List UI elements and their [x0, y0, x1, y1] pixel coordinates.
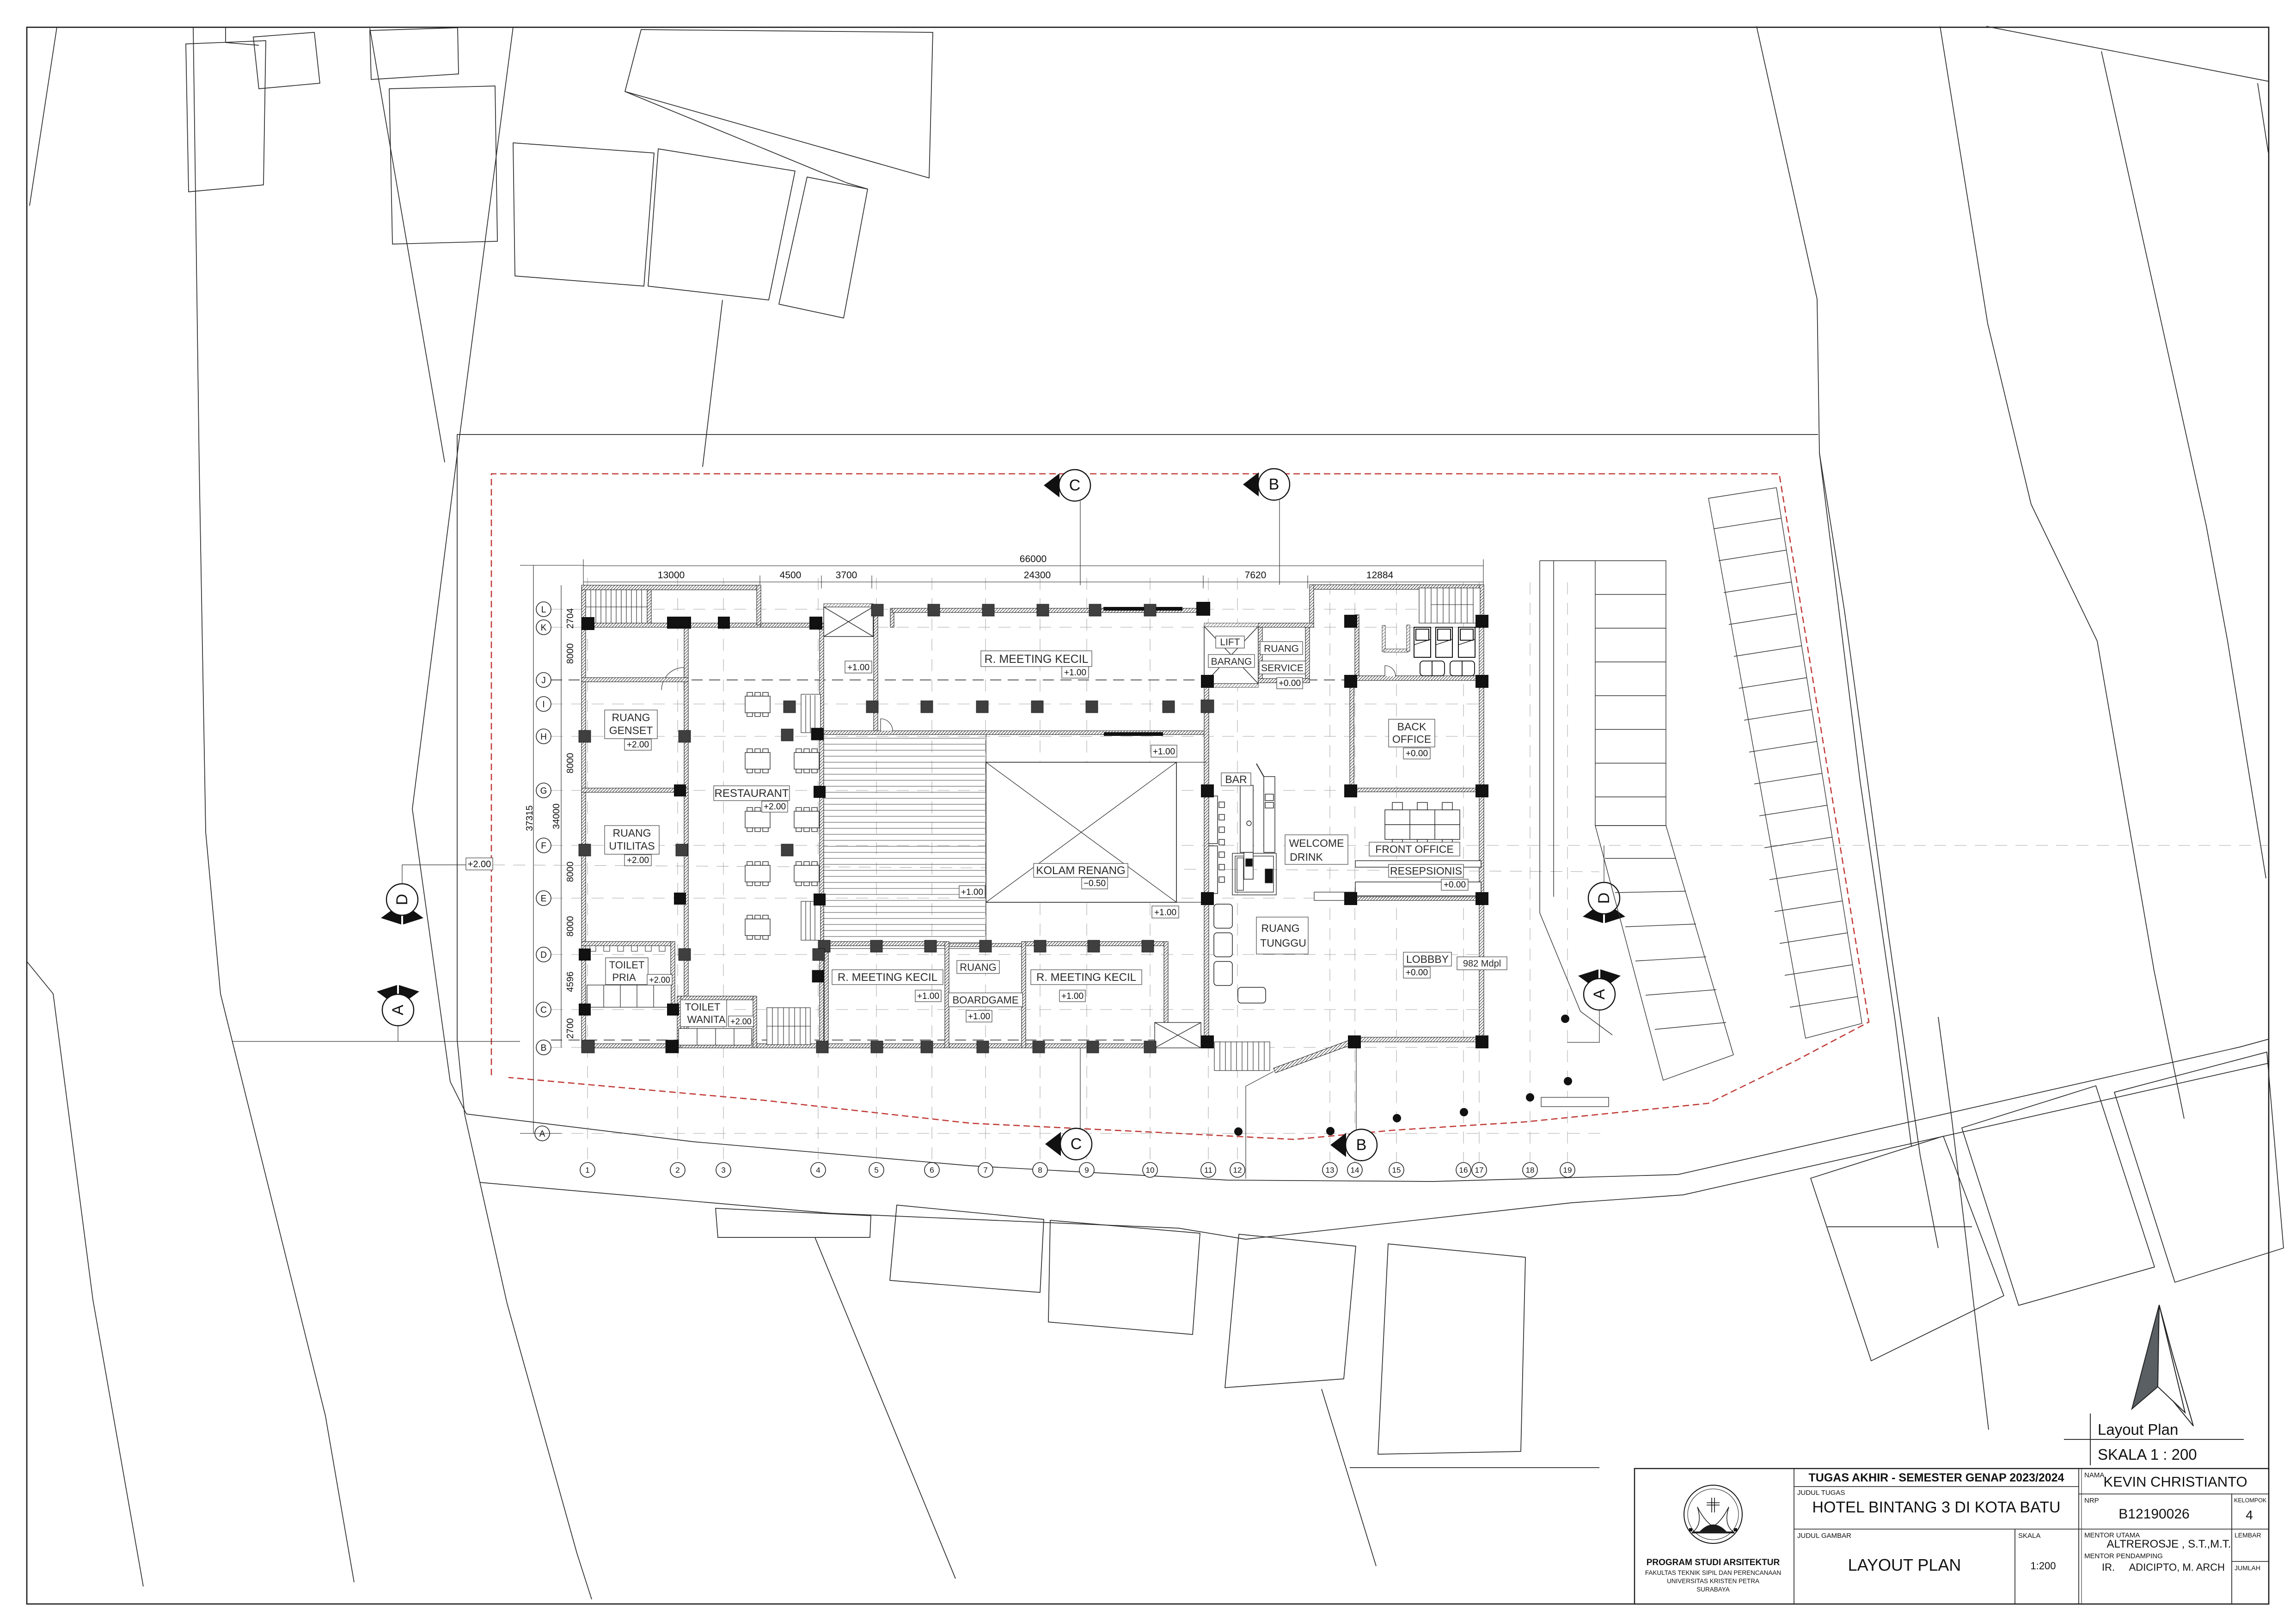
svg-text:+2.00: +2.00: [730, 1017, 752, 1026]
svg-text:1:200: 1:200: [2030, 1560, 2056, 1572]
svg-text:A: A: [539, 1129, 545, 1139]
svg-text:D: D: [393, 894, 411, 906]
svg-text:WELCOME: WELCOME: [1289, 837, 1344, 849]
svg-text:12884: 12884: [1366, 570, 1394, 581]
svg-text:HOTEL BINTANG 3 DI KOTA BATU: HOTEL BINTANG 3 DI KOTA BATU: [1812, 1499, 2060, 1516]
svg-text:JUMLAH: JUMLAH: [2235, 1564, 2260, 1572]
svg-text:TUGAS AKHIR - SEMESTER GENAP 2: TUGAS AKHIR - SEMESTER GENAP 2023/2024: [1809, 1471, 2064, 1484]
svg-text:C: C: [1071, 1135, 1082, 1153]
svg-text:+0.00: +0.00: [1279, 679, 1301, 688]
svg-text:RUANG: RUANG: [1264, 643, 1299, 654]
svg-text:2700: 2700: [565, 1018, 576, 1039]
svg-text:7: 7: [983, 1166, 987, 1175]
svg-text:WANITA: WANITA: [687, 1014, 725, 1025]
svg-text:SERVICE: SERVICE: [1261, 663, 1304, 673]
svg-text:PROGRAM STUDI ARSITEKTUR: PROGRAM STUDI ARSITEKTUR: [1647, 1558, 1780, 1567]
svg-text:TOILET: TOILET: [685, 1001, 721, 1013]
svg-text:BOARDGAME: BOARDGAME: [952, 994, 1018, 1006]
svg-text:8000: 8000: [565, 643, 576, 664]
svg-text:RESTAURANT: RESTAURANT: [715, 787, 789, 800]
svg-text:982 Mdpl: 982 Mdpl: [1463, 959, 1501, 969]
svg-text:13000: 13000: [658, 570, 685, 581]
svg-text:10: 10: [1146, 1166, 1155, 1175]
svg-text:BAR: BAR: [1225, 773, 1247, 785]
svg-text:R. MEETING KECIL: R. MEETING KECIL: [838, 971, 937, 984]
svg-text:+2.00: +2.00: [649, 975, 670, 985]
svg-text:LAYOUT PLAN: LAYOUT PLAN: [1848, 1555, 1961, 1574]
svg-text:15: 15: [1392, 1166, 1401, 1175]
svg-text:IR. ADICIPTO, M. ARCH: IR. ADICIPTO, M. ARCH: [2102, 1561, 2225, 1573]
svg-text:4: 4: [2246, 1508, 2253, 1522]
svg-text:3: 3: [721, 1166, 725, 1175]
svg-text:A: A: [389, 1004, 407, 1015]
svg-text:−0.50: −0.50: [1084, 879, 1106, 888]
svg-text:2704: 2704: [565, 608, 576, 629]
svg-text:RUANG: RUANG: [960, 961, 996, 973]
svg-text:16: 16: [1459, 1166, 1468, 1175]
svg-text:OFFICE: OFFICE: [1392, 733, 1431, 745]
svg-text:+1.00: +1.00: [1064, 668, 1086, 678]
svg-text:66000: 66000: [1020, 554, 1047, 564]
svg-text:FAKULTAS TEKNIK SIPIL DAN PERE: FAKULTAS TEKNIK SIPIL DAN PERENCANAAN: [1645, 1569, 1781, 1576]
svg-text:12: 12: [1233, 1166, 1242, 1175]
svg-text:LIFT: LIFT: [1220, 637, 1240, 648]
svg-text:18: 18: [1526, 1166, 1535, 1175]
svg-text:7620: 7620: [1245, 570, 1267, 581]
svg-text:GENSET: GENSET: [609, 724, 653, 736]
svg-text:SKALA: SKALA: [2018, 1532, 2040, 1540]
svg-text:8000: 8000: [565, 916, 576, 937]
svg-text:R. MEETING KECIL: R. MEETING KECIL: [1036, 971, 1136, 984]
svg-text:L: L: [541, 605, 546, 615]
svg-text:+2.00: +2.00: [468, 859, 491, 869]
svg-text:4: 4: [816, 1166, 820, 1175]
svg-text:C: C: [1069, 477, 1081, 494]
svg-text:B: B: [1269, 476, 1280, 493]
svg-text:J: J: [541, 676, 546, 686]
svg-text:B: B: [1356, 1136, 1367, 1154]
svg-text:I: I: [542, 700, 545, 710]
svg-text:B12190026: B12190026: [2118, 1506, 2190, 1522]
svg-text:UNIVERSITAS KRISTEN PETRA: UNIVERSITAS KRISTEN PETRA: [1667, 1578, 1759, 1585]
svg-text:KEVIN CHRISTIANTO: KEVIN CHRISTIANTO: [2103, 1474, 2247, 1490]
svg-text:FRONT OFFICE: FRONT OFFICE: [1375, 843, 1454, 855]
svg-text:MENTOR PENDAMPING: MENTOR PENDAMPING: [2084, 1552, 2163, 1560]
svg-text:H: H: [540, 732, 547, 742]
svg-text:+1.00: +1.00: [847, 663, 869, 673]
svg-text:RUANG: RUANG: [612, 711, 650, 723]
svg-text:+1.00: +1.00: [968, 1012, 990, 1022]
svg-text:UTILITAS: UTILITAS: [609, 840, 655, 852]
svg-text:9: 9: [1084, 1166, 1089, 1175]
svg-text:+2.00: +2.00: [627, 856, 649, 865]
svg-text:+1.00: +1.00: [961, 888, 983, 897]
svg-text:+1.00: +1.00: [917, 992, 939, 1001]
svg-text:NRP: NRP: [2084, 1497, 2099, 1505]
svg-text:LEMBAR: LEMBAR: [2235, 1531, 2261, 1539]
svg-text:SURABAYA: SURABAYA: [1696, 1586, 1730, 1593]
svg-text:+0.00: +0.00: [1406, 749, 1428, 759]
svg-text:RUANG: RUANG: [1261, 922, 1299, 934]
svg-text:A: A: [1591, 989, 1608, 999]
svg-text:D: D: [1595, 893, 1613, 904]
svg-text:+2.00: +2.00: [764, 802, 786, 812]
svg-text:D: D: [540, 950, 547, 960]
svg-text:NAMA: NAMA: [2084, 1471, 2104, 1479]
svg-text:1: 1: [585, 1166, 589, 1175]
svg-text:14: 14: [1351, 1166, 1359, 1175]
svg-text:TUNGGU: TUNGGU: [1260, 937, 1306, 949]
svg-text:6: 6: [930, 1166, 934, 1175]
svg-text:8000: 8000: [565, 862, 576, 882]
svg-text:4500: 4500: [780, 570, 802, 581]
svg-text:11: 11: [1204, 1166, 1212, 1175]
svg-text:TOILET: TOILET: [609, 959, 645, 971]
svg-text:RESEPSIONIS: RESEPSIONIS: [1390, 865, 1462, 877]
svg-text:F: F: [541, 841, 546, 851]
svg-text:8: 8: [1038, 1166, 1042, 1175]
svg-text:+2.00: +2.00: [627, 740, 649, 750]
svg-text:C: C: [540, 1005, 547, 1015]
svg-text:+0.00: +0.00: [1444, 880, 1466, 890]
svg-text:E: E: [541, 894, 547, 904]
svg-text:JUDUL TUGAS: JUDUL TUGAS: [1797, 1489, 1845, 1497]
svg-text:Layout Plan: Layout Plan: [2098, 1421, 2178, 1438]
svg-text:37315: 37315: [525, 805, 535, 831]
svg-text:+0.00: +0.00: [1406, 968, 1428, 978]
svg-text:+1.00: +1.00: [1153, 747, 1175, 757]
svg-text:19: 19: [1563, 1166, 1572, 1175]
svg-text:24300: 24300: [1024, 570, 1051, 581]
svg-text:RUANG: RUANG: [612, 827, 651, 839]
svg-text:JUDUL GAMBAR: JUDUL GAMBAR: [1797, 1532, 1851, 1540]
svg-text:R. MEETING KECIL: R. MEETING KECIL: [984, 653, 1088, 666]
svg-text:ALTREROSJE , S.T.,M.T.: ALTREROSJE , S.T.,M.T.: [2107, 1538, 2231, 1550]
svg-text:BARANG: BARANG: [1211, 656, 1252, 667]
svg-text:2: 2: [675, 1166, 680, 1175]
svg-text:B: B: [541, 1043, 547, 1053]
svg-text:SKALA 1 : 200: SKALA 1 : 200: [2098, 1446, 2197, 1463]
svg-text:34000: 34000: [551, 803, 562, 829]
svg-text:8000: 8000: [565, 753, 576, 774]
svg-text:+1.00: +1.00: [1154, 908, 1176, 918]
svg-text:KOLAM RENANG: KOLAM RENANG: [1036, 864, 1125, 877]
svg-text:4596: 4596: [565, 972, 576, 992]
svg-text:+1.00: +1.00: [1061, 992, 1084, 1001]
svg-text:K: K: [541, 623, 547, 633]
svg-text:13: 13: [1326, 1166, 1335, 1175]
svg-text:G: G: [540, 786, 547, 796]
svg-text:KELOMPOK: KELOMPOK: [2234, 1497, 2267, 1504]
svg-text:BACK: BACK: [1397, 721, 1427, 733]
svg-text:LOBBBY: LOBBBY: [1406, 953, 1449, 965]
svg-text:17: 17: [1475, 1166, 1484, 1175]
svg-text:DRINK: DRINK: [1290, 851, 1323, 863]
svg-text:PRIA: PRIA: [612, 972, 636, 983]
svg-text:5: 5: [874, 1166, 878, 1175]
svg-text:3700: 3700: [836, 570, 857, 581]
